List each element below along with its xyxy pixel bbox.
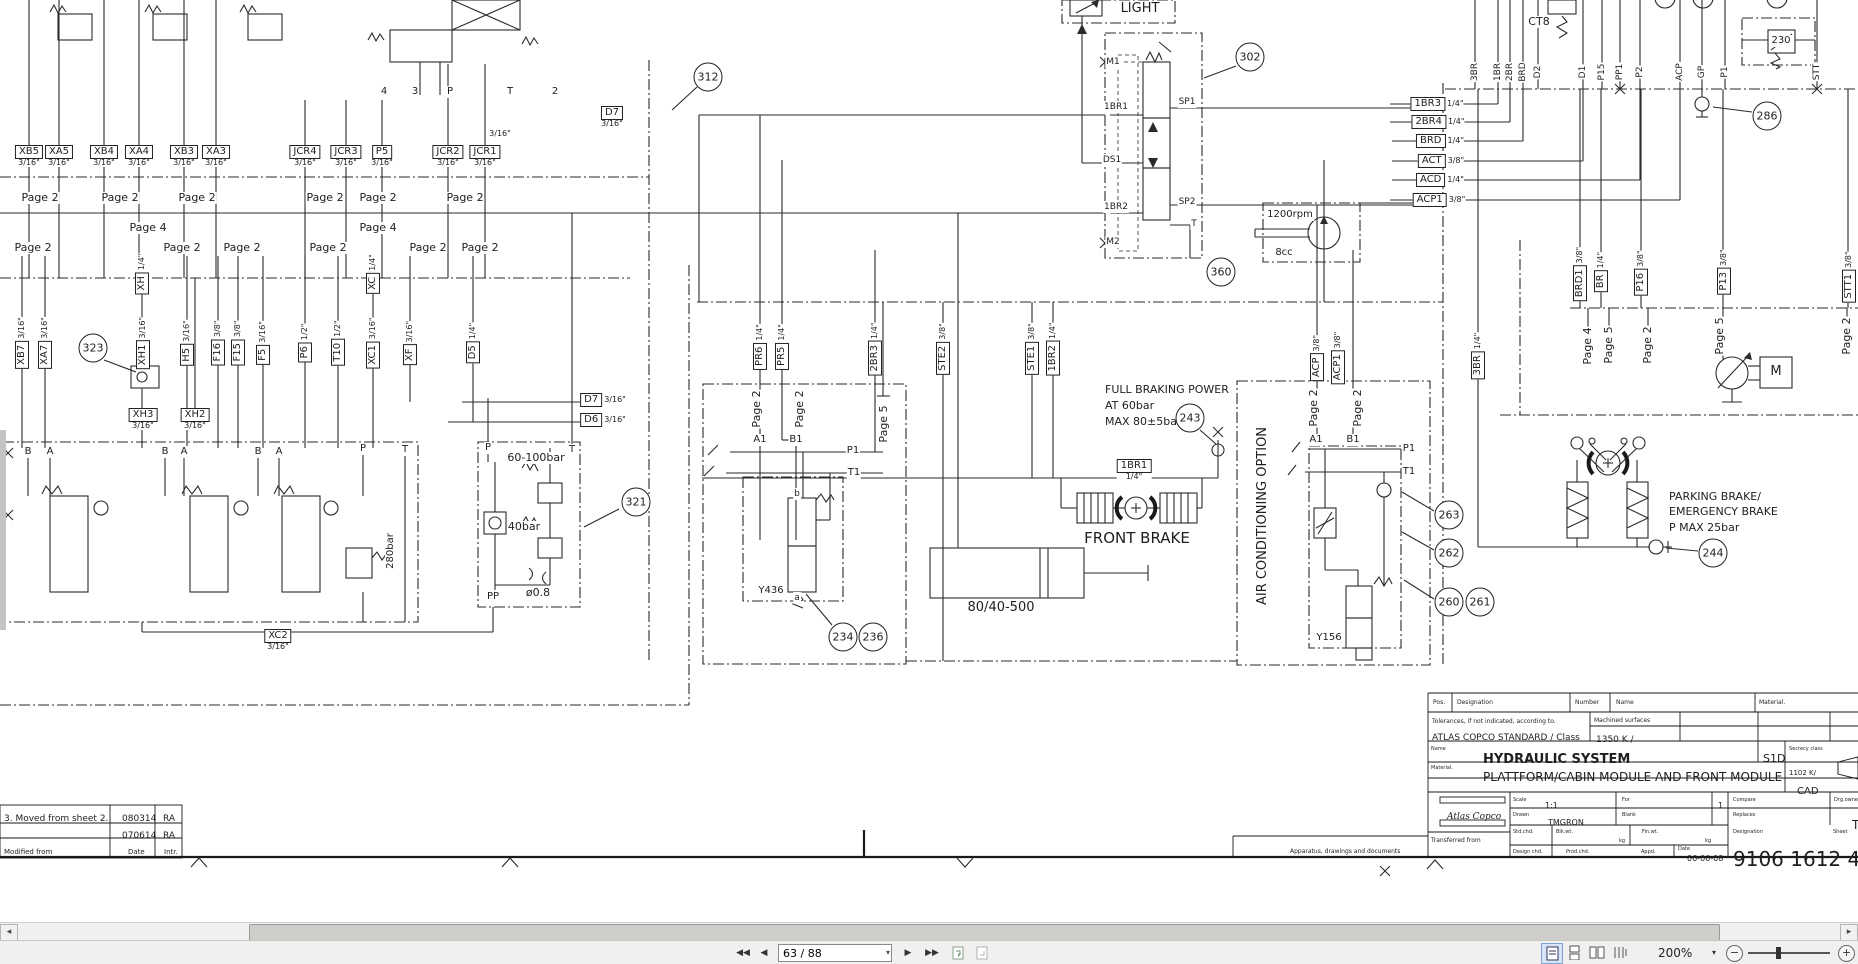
schematic-text: ACP [1674,62,1686,82]
revision-rev-date-2: 070614 [122,831,156,841]
port-label-d6: D63/16" [580,413,626,427]
port-label-xc2: XC23/16" [264,629,291,651]
port-label-xa3: XA33/16" [202,145,230,167]
schematic-text: P [359,443,367,455]
schematic-text: P [484,442,492,454]
schematic-text: Y436 [757,585,784,597]
schematic-text: T [568,444,576,456]
schematic-text: Page 5 [878,404,890,443]
schematic-text: Page 5 [1603,325,1615,364]
port-label-1br1: 1BR11/4" [1117,459,1152,481]
titleblock-date-value: 06-06-08 [1687,854,1723,863]
titleblock-standard: ATLAS COPCO STANDARD / Class [1432,733,1580,743]
schematic-text: P [446,86,454,98]
ref-balloon-360: 360 [1207,258,1236,287]
ref-balloon-263: 263 [1435,501,1464,530]
schematic-text: PP1 [1614,63,1626,82]
titleblock-cad: CAD [1797,786,1819,797]
port-label-f5: F53/16" [256,321,270,365]
titleblock-scale-label: Scale [1513,797,1526,803]
schematic-text: P1 [1402,443,1416,455]
ref-balloon-244: 244 [1699,539,1728,568]
previous-view-icon[interactable] [950,943,968,962]
port-label-pr6: PR61/4" [753,324,767,370]
schematic-text: EMERGENCY BRAKE [1668,506,1779,518]
schematic-text: Page 2 [1352,388,1364,427]
revision-rev-date-1: 080314 [122,814,156,824]
schematic-text: Page 2 [1308,388,1320,427]
port-label-brd1: BRD13/8" [1573,247,1587,301]
port-label-xb3: XB33/16" [170,145,198,167]
port-label-f15: F153/8" [231,320,245,365]
titleblock-number-header: Number [1575,699,1599,706]
titleblock-kg-2: kg [1705,838,1711,844]
revision-rev-footer-by: Intr. [164,848,178,856]
port-label-xf: XF3/16" [403,321,417,365]
schematic-text: A [180,446,189,458]
schematic-text: Page 2 [445,192,484,204]
schematic-text: T [506,86,514,98]
schematic-text: Page 2 [162,242,201,254]
port-label-xh3: XH33/16" [129,408,158,430]
schematic-text: 1BR1 [1103,101,1129,113]
port-label-pr5: PR51/4" [775,324,789,370]
titleblock-for-label: For [1622,797,1630,803]
schematic-text: GP [1696,65,1708,79]
schematic-text: 280bar [385,532,397,570]
port-label-act: ACT3/8" [1418,154,1464,168]
port-label-jcr4: JCR43/16" [289,145,320,167]
horizontal-scrollbar[interactable]: ◂ ▸ [0,922,1858,941]
schematic-text: Page 2 [358,192,397,204]
schematic-text: MAX 80±5bar [1104,416,1183,428]
schematic-text: SP2 [1178,196,1197,208]
schematic-text: 60-100bar [506,452,565,464]
schematic-text: P2 [1634,65,1646,78]
schematic-text: 1BR [1492,62,1504,82]
schematic-text: Page 2 [305,192,344,204]
titleblock-brand: Atlas Copco [1447,812,1501,822]
zoom-out-button[interactable]: − [1726,945,1743,962]
port-label-xa7: XA73/16" [38,317,52,369]
ref-balloon-312: 312 [694,63,723,92]
schematic-text: FULL BRAKING POWER [1104,384,1230,396]
titleblock-doc-note: Apparatus, drawings and documents [1290,848,1400,855]
port-label-xb4: XB43/16" [90,145,118,167]
titleblock-designation-label: Designation [1733,829,1763,835]
port-label-xh2: XH23/16" [181,408,210,430]
pdf-viewer-window: XB53/16"XA53/16"XB43/16"XA43/16"XB33/16"… [0,0,1858,964]
schematic-text: Page 2 [177,192,216,204]
port-label-t10: T101/2" [331,320,345,365]
revision-rev-by-2: RA [163,831,175,841]
port-label-jcr3: JCR33/16" [330,145,361,167]
port-label-d5: D51/4" [466,323,480,364]
schematic-text: PP [486,591,500,603]
schematic-text: Page 2 [794,389,806,428]
schematic-text: Page 2 [13,242,52,254]
continuous-layout-icon[interactable] [1564,943,1584,962]
schematic-text: b [793,488,801,500]
schematic-text: LIGHT [1120,3,1161,15]
ref-balloon-234: 234 [829,623,858,652]
continuous-facing-layout-icon[interactable] [1610,943,1630,962]
titleblock-designation-header: Designation [1457,699,1493,706]
port-label-1br2: 1BR21/4" [1046,322,1060,375]
ref-balloon-261: 261 [1466,588,1495,617]
ref-balloon-323: 323 [79,334,108,363]
port-label-xc: XC1/4" [366,254,380,294]
schematic-text: AT 60bar [1104,400,1155,412]
schematic-text: B1 [788,434,803,446]
zoom-slider-handle[interactable] [1776,947,1781,959]
schematic-text: Page 5 [1714,316,1726,355]
schematic-text: DS1 [1102,154,1122,166]
port-label-jcr2: JCR23/16" [432,145,463,167]
schematic-text: Page 4 [1582,326,1594,365]
page-torn-edge [0,430,6,630]
scrollbar-thumb[interactable] [249,924,1720,941]
port-label-xh: XH1/4" [135,254,149,295]
schematic-text: 230 [1770,35,1791,47]
page-dropdown-caret-icon[interactable]: ▾ [886,948,890,957]
schematic-text: 2 [551,86,559,98]
single-page-layout-icon[interactable] [1541,943,1563,964]
schematic-text: B [254,446,263,458]
port-label-p6: P61/2" [298,324,312,363]
viewer-toolbar: ◀◀ ◀ ▾ ▶ ▶▶ [0,940,1858,964]
titleblock-secrecy-label: Secrecy class [1789,746,1823,752]
schematic-text: 1200rpm [1266,209,1314,221]
next-view-icon[interactable] [974,943,992,962]
titleblock-blk-wt: Blk.wt. [1556,829,1573,835]
titleblock-appd: Appd. [1641,849,1656,855]
port-label-xc1: XC13/16" [366,317,380,368]
port-label-1br3: 1BR31/4" [1410,97,1463,111]
titleblock-machined-value: 1350 K / [1596,735,1634,745]
schematic-text: PARKING BRAKE/ [1668,491,1762,503]
port-label-jcr1: JCR13/16" [469,145,500,167]
schematic-page[interactable]: XB53/16"XA53/16"XB43/16"XA43/16"XB33/16"… [0,0,1858,922]
schematic-text: 1BR2 [1103,201,1129,213]
port-label-ste1: STE13/8" [1025,323,1039,375]
last-page-button[interactable]: ▶▶ [922,943,942,962]
port-label-stt1: STT13/8" [1842,251,1856,302]
schematic-text: D1 [1577,65,1589,80]
port-label-xa5: XA53/16" [45,145,73,167]
ref-balloon-286: 286 [1753,102,1782,131]
schematic-text: 3/16" [488,128,512,140]
titleblock-secrecy-code: 1102 K/ [1789,769,1816,777]
schematic-text: Page 2 [751,389,763,428]
titleblock-design-chd: Design chd. [1513,849,1543,855]
schematic-text: A1 [752,434,767,446]
titleblock-blank-label: Blank [1622,812,1636,818]
schematic-text: ø0.8 [525,587,551,599]
port-label-f16: F163/8" [211,320,225,365]
schematic-text: 80/40-500 [967,602,1036,614]
ref-balloon-321: 321 [622,488,651,517]
schematic-text: P1 [846,445,860,457]
port-label-d7: D73/16" [601,106,623,128]
titleblock-title-code: S1D [1763,752,1785,765]
port-label-acp1: ACP13/8" [1413,193,1466,207]
titleblock-transferred-from: Transferred from [1431,837,1481,844]
titleblock-scale-value: 1:1 [1545,801,1558,810]
schematic-text: T1 [1402,466,1416,478]
schematic-text: 8cc [1274,247,1293,259]
titleblock-fin-wt: Fin.wt. [1642,829,1658,835]
titleblock-compare-label: Compare [1733,797,1756,803]
titleblock-name-label: Name [1431,746,1446,752]
schematic-text: B [24,446,33,458]
schematic-text: A1 [1308,434,1323,446]
schematic-text: 2BR [1504,62,1516,82]
titleblock-name-header: Name [1616,699,1634,706]
schematic-text: 3 [411,86,419,98]
schematic-text: Page 4 [128,222,167,234]
titleblock-sheet-label: Sheet [1833,829,1847,835]
schematic-text: M [1769,366,1782,378]
schematic-text: Page 2 [1642,325,1654,364]
port-label-acp: ACP3/8" [1310,335,1324,381]
port-label-acd: ACD1/4" [1416,173,1464,187]
titleblock-drawing-title: HYDRAULIC SYSTEM [1483,752,1630,767]
titleblock-drawing-subtitle: PLATTFORM/CABIN MODULE AND FRONT MODULE [1483,770,1782,784]
previous-page-button[interactable]: ◀ [757,943,771,962]
port-label-ste2: STE23/8" [936,323,950,375]
revision-rev-footer-desc: Modified from [4,848,52,856]
schematic-text: Page 4 [358,222,397,234]
schematic-text: Page 2 [308,242,347,254]
titleblock-tolerances-note: Tolerances, if not indicated, according … [1432,718,1556,725]
schematic-text: T [401,444,409,456]
titleblock-std-chd: Std.chd. [1513,829,1534,835]
schematic-text: Page 2 [1841,316,1853,355]
port-label-h5: H53/16" [180,320,194,366]
titleblock-material-label: Material. [1431,765,1453,771]
schematic-text: B [161,446,170,458]
titleblock-machined-surfaces: Machined surfaces [1594,717,1650,724]
port-label-xa4: XA43/16" [125,145,153,167]
port-label-3br: 3BR1/4" [1471,333,1485,380]
titleblock-material-header: Material. [1759,699,1785,706]
schematic-text: 3BR [1469,62,1481,82]
titleblock-prod-chd: Prod.chd. [1566,849,1589,855]
port-label-p13: P133/8" [1717,249,1731,294]
revision-rev-by-1: RA [163,814,175,824]
titleblock-date-label: Date [1678,846,1690,852]
page-number-input[interactable] [781,945,879,961]
schematic-text: AIR CONDITIONING OPTION [1257,426,1269,606]
schematic-text: Page 2 [20,192,59,204]
titleblock-owner-code: T [1852,818,1858,832]
page-number-box: ▾ [778,944,892,962]
facing-pages-layout-icon[interactable] [1587,943,1607,962]
schematic-text: B1 [1345,434,1360,446]
titleblock-pos-header: Pos. [1433,699,1445,706]
schematic-text: P15 [1596,63,1608,82]
schematic-text: Y156 [1315,632,1342,644]
schematic-text: P MAX 25bar [1668,522,1740,534]
zoom-level-value: 200% [1658,946,1692,960]
port-label-xb5: XB53/16" [15,145,43,167]
schematic-text: SP1 [1178,96,1197,108]
schematic-text: T [1190,218,1198,230]
revision-rev-footer-date: Date [128,848,145,856]
titleblock-sheet-count: 1 [1718,801,1723,810]
ref-balloon-260: 260 [1435,588,1464,617]
titleblock-drawn-by: TMGRON [1548,818,1584,827]
titleblock-drawn-label: Drawn [1513,812,1529,818]
port-label-acp1: ACP13/8" [1331,332,1345,385]
port-label-xb7: XB73/16" [15,317,29,369]
schematic-text: 4 [380,86,388,98]
zoom-dropdown-caret-icon[interactable]: ▾ [1708,943,1720,962]
schematic-text: STT [1811,63,1823,82]
zoom-slider[interactable] [1748,952,1830,954]
port-label-xh1: XH13/16" [136,317,150,369]
revision-rev-desc-1: 3. Moved from sheet 2. [4,814,108,824]
schematic-text: A [275,446,284,458]
schematic-text: P1 [1719,65,1731,78]
next-page-button[interactable]: ▶ [901,943,915,962]
port-label-brd: BRD1/4" [1416,134,1464,148]
port-label-d7: D73/16" [580,393,626,407]
schematic-text: FRONT BRAKE [1083,532,1191,544]
port-label-p5: P53/16" [371,145,393,167]
schematic-text: A [46,446,55,458]
schematic-text: D2 [1532,65,1544,80]
titleblock-doc-number: 9106 1612 40 [1733,847,1858,871]
schematic-text: 40bar [507,521,541,533]
schematic-text: Page 2 [460,242,499,254]
ref-balloon-302: 302 [1236,43,1265,72]
schematic-text: Page 2 [222,242,261,254]
schematic-text: BRD [1517,61,1529,82]
schematic-text: CT8 [1527,16,1550,28]
ref-balloon-236: 236 [859,623,888,652]
ref-balloon-262: 262 [1435,539,1464,568]
schematic-text: M1 [1105,56,1121,68]
titleblock-kg-1: kg [1619,838,1625,844]
schematic-text: M2 [1105,236,1121,248]
port-label-2br4: 2BR41/4" [1411,115,1464,129]
port-label-br: BR1/4" [1594,252,1608,292]
titleblock-replaces-label: Replaces [1733,812,1755,818]
schematic-text: Page 2 [408,242,447,254]
port-label-2br3: 2BR31/4" [868,322,882,375]
schematic-text: Page 2 [100,192,139,204]
port-label-p16: P163/8" [1634,250,1648,295]
titleblock-drg-owner-label: Drg.owner. [1834,797,1858,803]
zoom-in-button[interactable]: + [1838,945,1855,962]
ref-balloon-243: 243 [1176,404,1205,433]
schematic-text: T1 [847,467,861,479]
schematic-text: a [793,592,801,604]
first-page-button[interactable]: ◀◀ [733,943,753,962]
